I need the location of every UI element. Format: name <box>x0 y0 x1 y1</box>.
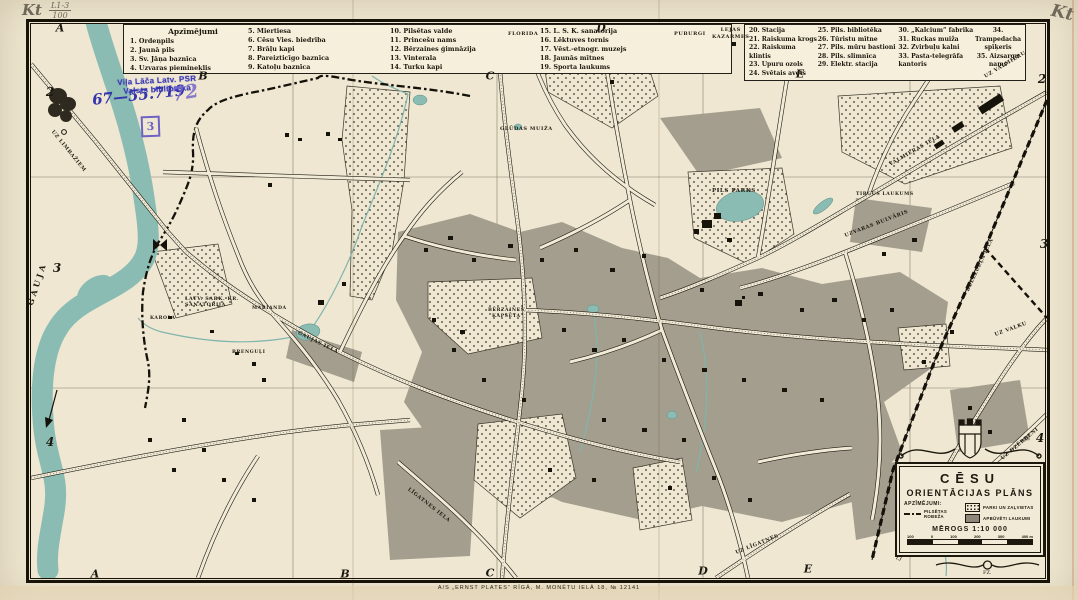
map-label-gludas-muiza: GLŪDAS MUIŽA <box>500 126 553 133</box>
scale-label: MĒROGS 1:10 000 <box>897 526 1043 533</box>
grid-letter-top-e: E <box>796 68 804 81</box>
legend-item: 4. Uzvaras piemineklis <box>130 64 248 73</box>
fold-crease <box>658 0 660 600</box>
map-label-brenguli: BRENGUĻI <box>232 350 266 356</box>
legend-item: 7. Brāļu kapi <box>248 45 390 54</box>
legend-item: 28. Pils. slimnīca <box>818 53 899 62</box>
legend-column-5: 20. Stacija 21. Raiskuma krogs 22. Raisk… <box>749 27 818 78</box>
boxed-number-stamp: 3 <box>141 116 161 138</box>
grid-letter-bottom-d: D <box>698 565 708 578</box>
legend-item: 16. Lēktuves tornis <box>540 36 680 45</box>
legend-box-right: 20. Stacija 21. Raiskuma krogs 22. Raisk… <box>744 24 1026 81</box>
legend-item: 1. Ordeņpils <box>130 37 248 46</box>
grid-letter-bottom-b: B <box>340 568 349 581</box>
legend-item: 18. Jaunās mītnes <box>540 54 680 63</box>
map-label-pils-parks: PILS PARKS <box>712 188 756 195</box>
fraction-numerator: L1-3 <box>49 1 71 11</box>
legend-item: 9. Katoļu baznīca <box>248 63 390 72</box>
legend-item: 8. Pareizticīgo baznīca <box>248 54 390 63</box>
map-label-karola: KAROLA <box>150 316 176 322</box>
legend-item: 5. Miertiesa <box>248 27 390 36</box>
coat-of-arms <box>895 418 1045 464</box>
engraver-monogram: FZ. <box>983 570 992 576</box>
pencil-shelfmark-fraction: L1-3 100 <box>49 1 71 20</box>
legend-item: 13. Vinterala <box>390 54 540 63</box>
grid-number-left-2: 2 <box>46 85 54 99</box>
map-sheet: Apzīmējumi 1. Ordeņpils 2. Jaunā pils 3.… <box>0 0 1078 600</box>
printer-imprint: A/S „ERNST PLATES” RĪGĀ, M. MONĒTU IELĀ … <box>0 585 1078 591</box>
grid-number-right-2: 2 <box>1038 72 1046 86</box>
scale-tick: 100 <box>907 534 914 539</box>
fold-crease <box>352 0 354 600</box>
fraction-denominator: 100 <box>52 11 67 20</box>
scale-tick: 300 <box>998 534 1005 539</box>
grid-letter-bottom-a: A <box>91 568 100 581</box>
boundary-label: PILSĒTAS ROBEŽA <box>924 509 947 520</box>
legend-column-4: 15. L. S. K. sanatorija 16. Lēktuves tor… <box>540 27 680 71</box>
map-label-marianda: MARIANDA <box>252 306 287 312</box>
legend-item: 15. L. S. K. sanatorija <box>540 27 680 36</box>
cartouche-ornament: FZ. <box>930 556 1045 576</box>
boundary-line-swatch <box>904 513 921 515</box>
legend-item: 3. Sv. Jāņa baznīca <box>130 55 248 64</box>
legend-item: 26. Tūristu mītne <box>818 36 899 45</box>
scale-tick: 400 m <box>1022 534 1033 539</box>
grid-number-right-3: 3 <box>1040 237 1048 251</box>
scale-tick: 100 <box>950 534 957 539</box>
grid-number-left-3: 3 <box>53 261 61 275</box>
grid-number-left-4: 4 <box>46 435 54 449</box>
map-label-puburgi: PUBURGI <box>674 31 706 38</box>
legend-item: 25. Pils. bibliotēka <box>818 27 899 36</box>
map-title-line2: ORIENTĀCIJAS PLĀNS <box>897 488 1043 498</box>
legend-column-7: 30. „Kalcium” fabrika 31. Ruckas muiža 3… <box>898 27 975 78</box>
map-title-line1: CĒSU <box>897 471 1043 486</box>
legend-item: 24. Svētais avots <box>749 70 818 79</box>
built-up-swatch <box>965 514 980 523</box>
legend-item: 2. Jaunā pils <box>130 46 248 55</box>
legend-item: 22. Raiskuma klintis <box>749 44 818 61</box>
legend-item: 33. Pasta-telegrāfa kantoris <box>898 53 975 70</box>
legend-item: 19. Sporta laukums <box>540 63 680 72</box>
legend-item: 29. Elektr. stacija <box>818 61 899 70</box>
title-cartouche: CĒSU ORIENTĀCIJAS PLĀNS APZĪMĒJUMI: PILS… <box>895 462 1045 557</box>
parks-label: PARKI UN ZAĻVIETAS <box>983 505 1034 510</box>
legend-box-left: Apzīmējumi 1. Ordeņpils 2. Jaunā pils 3.… <box>123 24 732 74</box>
grid-letter-top-d: D <box>596 22 606 35</box>
scan-edge <box>1072 0 1074 600</box>
grid-letter-top-a: A <box>56 22 65 35</box>
scale-tick: 200 <box>974 534 981 539</box>
parks-swatch <box>965 503 980 512</box>
legend-column-2: 5. Miertiesa 6. Cēsu Vies. biedrība 7. B… <box>248 27 390 71</box>
legend-item: 32. Zvirbuļu kalni <box>898 44 975 53</box>
legend-item: 27. Pils. mūru bastioni <box>818 44 899 53</box>
map-label-sanatorija: LATV. SARK. KR. SANATORIJA <box>185 296 239 308</box>
legend-item: 23. Upuru ozols <box>749 61 818 70</box>
legend-item: 34. Trampedacha spīķeris <box>975 27 1021 53</box>
legend-item: 17. Vēst.-etnogr. muzejs <box>540 45 680 54</box>
ink-scribble: 72 <box>170 80 200 106</box>
legend-header: Apzīmējumi <box>138 27 248 36</box>
legend-column-6: 25. Pils. bibliotēka 26. Tūristu mītne 2… <box>818 27 899 78</box>
map-label-lejas-kazarmes: LEJAS KAZARMES <box>712 27 749 40</box>
legend-item: 14. Turku kapi <box>390 63 540 72</box>
map-label-berzaines-kapseta: BĒRZAINES KAPSĒTA <box>488 308 525 320</box>
legend-item: 31. Ruckas muiža <box>898 36 975 45</box>
scale-bar: 100 0 100 200 300 400 m <box>907 534 1033 545</box>
pencil-kt: Kt <box>22 1 42 19</box>
grid-letter-bottom-e: E <box>804 563 812 576</box>
built-up-label: APBŪVĒTI LAUKUMI <box>983 516 1031 521</box>
map-label-florida: FLORIDA <box>508 31 538 38</box>
pencil-annotation-topleft: Kt L1-3 100 <box>22 1 71 20</box>
grid-letter-bottom-c: C <box>486 567 495 580</box>
scale-tick: 0 <box>931 534 933 539</box>
legend-column-1: Apzīmējumi 1. Ordeņpils 2. Jaunā pils 3.… <box>130 27 248 71</box>
legend-item: 6. Cēsu Vies. biedrība <box>248 36 390 45</box>
legend-item: 30. „Kalcium” fabrika <box>898 27 975 36</box>
grid-letter-top-c: C <box>486 70 495 83</box>
map-label-tirgus-laukums: TIRGUS LAUKUMS <box>856 192 914 198</box>
legend-item: 20. Stacija <box>749 27 818 36</box>
legend-item: 21. Raiskuma krogs <box>749 36 818 45</box>
legend-item: 12. Bērzaines ģimnāzija <box>390 45 540 54</box>
cartouche-legend-header: APZĪMĒJUMI: <box>904 501 960 507</box>
